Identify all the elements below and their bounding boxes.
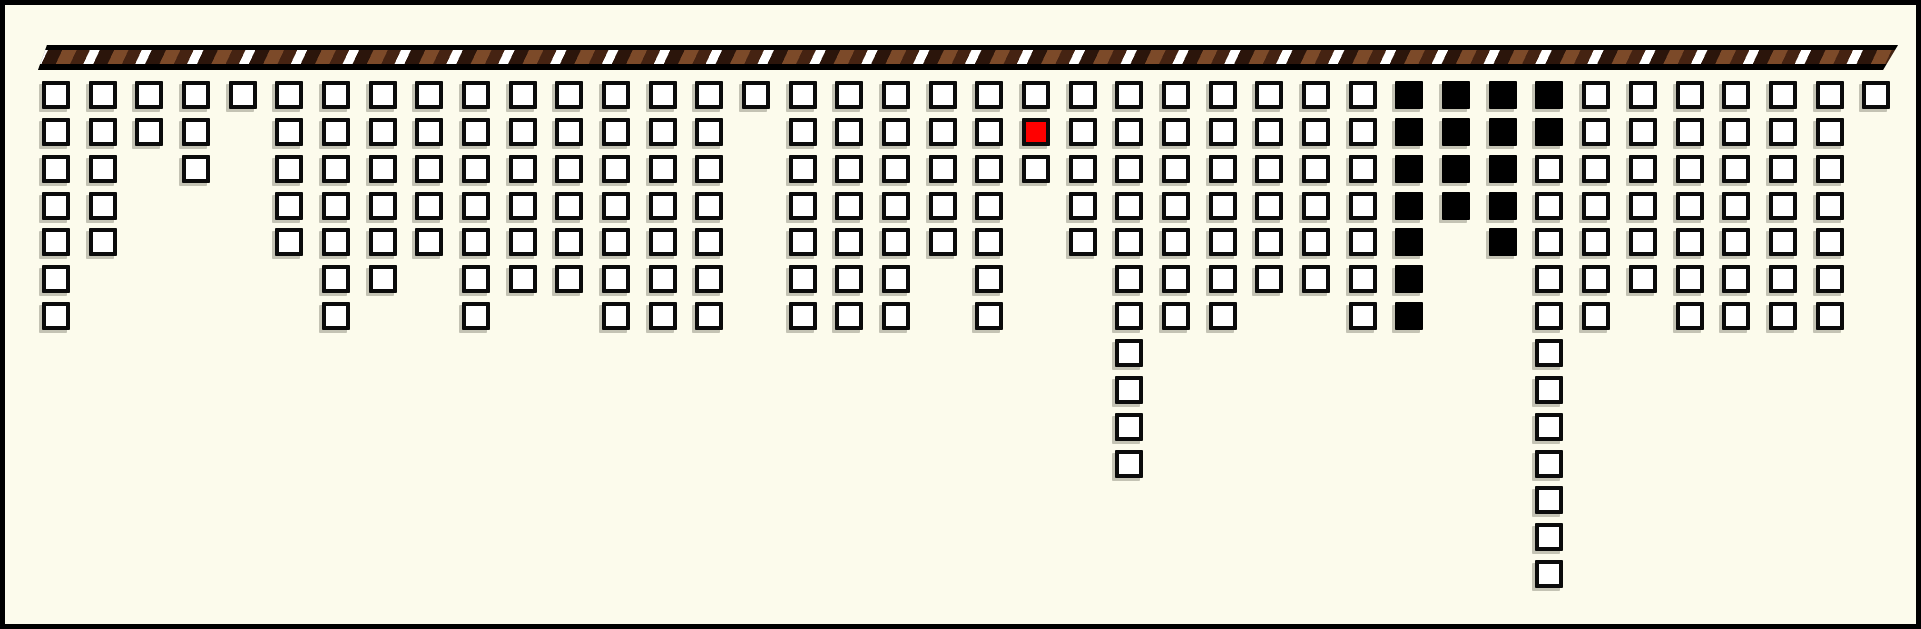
rope-stripes bbox=[38, 50, 1898, 64]
cell-square[interactable] bbox=[695, 302, 723, 330]
cell-square[interactable] bbox=[369, 265, 397, 293]
cell-square[interactable] bbox=[555, 192, 583, 220]
cell-square[interactable] bbox=[275, 228, 303, 256]
cell-square[interactable] bbox=[1535, 450, 1563, 478]
cell-square[interactable] bbox=[42, 81, 70, 109]
cell-square[interactable] bbox=[42, 155, 70, 183]
cell-square[interactable] bbox=[1162, 228, 1190, 256]
cell-square[interactable] bbox=[882, 302, 910, 330]
cell-square[interactable] bbox=[1069, 118, 1097, 146]
cell-square[interactable] bbox=[555, 265, 583, 293]
cell-square[interactable] bbox=[182, 155, 210, 183]
cell-square[interactable] bbox=[1769, 118, 1797, 146]
cell-square[interactable] bbox=[1769, 265, 1797, 293]
cell-square[interactable] bbox=[602, 155, 630, 183]
cell-square[interactable] bbox=[229, 81, 257, 109]
cell-square[interactable] bbox=[835, 118, 863, 146]
cell-square[interactable] bbox=[975, 81, 1003, 109]
cell-square[interactable] bbox=[1629, 192, 1657, 220]
cell-square[interactable] bbox=[1535, 523, 1563, 551]
cell-square[interactable] bbox=[462, 228, 490, 256]
cell-square[interactable] bbox=[882, 192, 910, 220]
cell-square[interactable] bbox=[1209, 228, 1237, 256]
cell-square[interactable] bbox=[1302, 265, 1330, 293]
cell-filled-black[interactable] bbox=[1395, 265, 1423, 293]
cell-square[interactable] bbox=[602, 81, 630, 109]
cell-square[interactable] bbox=[789, 155, 817, 183]
cell-square[interactable] bbox=[1722, 155, 1750, 183]
cell-square[interactable] bbox=[1535, 376, 1563, 404]
cell-square[interactable] bbox=[1629, 155, 1657, 183]
cell-square[interactable] bbox=[135, 81, 163, 109]
cell-square[interactable] bbox=[649, 228, 677, 256]
cell-square[interactable] bbox=[835, 155, 863, 183]
cell-square[interactable] bbox=[1629, 228, 1657, 256]
cell-square[interactable] bbox=[975, 302, 1003, 330]
cell-square[interactable] bbox=[1769, 155, 1797, 183]
cell-square[interactable] bbox=[1255, 118, 1283, 146]
cell-square[interactable] bbox=[1209, 118, 1237, 146]
cell-square[interactable] bbox=[1255, 265, 1283, 293]
cell-square[interactable] bbox=[835, 265, 863, 293]
cell-square[interactable] bbox=[135, 118, 163, 146]
cell-square[interactable] bbox=[602, 192, 630, 220]
cell-square[interactable] bbox=[1816, 228, 1844, 256]
cell-filled-black[interactable] bbox=[1442, 155, 1470, 183]
cell-square[interactable] bbox=[1535, 192, 1563, 220]
cell-square[interactable] bbox=[1676, 118, 1704, 146]
cell-square[interactable] bbox=[1676, 155, 1704, 183]
cell-square[interactable] bbox=[1535, 228, 1563, 256]
cell-square[interactable] bbox=[602, 302, 630, 330]
cell-square[interactable] bbox=[1816, 265, 1844, 293]
cell-square[interactable] bbox=[882, 118, 910, 146]
cell-square[interactable] bbox=[649, 118, 677, 146]
cell-square[interactable] bbox=[1255, 155, 1283, 183]
cell-square[interactable] bbox=[929, 118, 957, 146]
cell-square[interactable] bbox=[1722, 192, 1750, 220]
cell-square[interactable] bbox=[1816, 302, 1844, 330]
cell-square[interactable] bbox=[42, 302, 70, 330]
cell-square[interactable] bbox=[1535, 486, 1563, 514]
cell-square[interactable] bbox=[415, 192, 443, 220]
cell-square[interactable] bbox=[1115, 339, 1143, 367]
cell-square[interactable] bbox=[1769, 228, 1797, 256]
cell-square[interactable] bbox=[509, 81, 537, 109]
cell-square[interactable] bbox=[1582, 302, 1610, 330]
cell-square[interactable] bbox=[1115, 450, 1143, 478]
cell-square[interactable] bbox=[462, 81, 490, 109]
cell-square[interactable] bbox=[555, 155, 583, 183]
cell-square[interactable] bbox=[1162, 118, 1190, 146]
cell-square[interactable] bbox=[42, 192, 70, 220]
cell-square[interactable] bbox=[882, 81, 910, 109]
cell-square[interactable] bbox=[1769, 81, 1797, 109]
cell-square[interactable] bbox=[1535, 265, 1563, 293]
cell-square[interactable] bbox=[1862, 81, 1890, 109]
cell-square[interactable] bbox=[1302, 155, 1330, 183]
cell-square[interactable] bbox=[1629, 118, 1657, 146]
cell-square[interactable] bbox=[1255, 81, 1283, 109]
cell-square[interactable] bbox=[1582, 192, 1610, 220]
cell-square[interactable] bbox=[1349, 228, 1377, 256]
cell-filled-black[interactable] bbox=[1535, 81, 1563, 109]
cell-square[interactable] bbox=[789, 192, 817, 220]
cell-red-highlight[interactable] bbox=[1022, 118, 1050, 146]
cell-square[interactable] bbox=[1769, 302, 1797, 330]
cell-square[interactable] bbox=[695, 228, 723, 256]
cell-square[interactable] bbox=[555, 228, 583, 256]
cell-square[interactable] bbox=[1162, 302, 1190, 330]
cell-square[interactable] bbox=[602, 265, 630, 293]
cell-square[interactable] bbox=[835, 228, 863, 256]
cell-square[interactable] bbox=[1722, 265, 1750, 293]
cell-square[interactable] bbox=[1629, 81, 1657, 109]
cell-square[interactable] bbox=[89, 118, 117, 146]
cell-square[interactable] bbox=[789, 228, 817, 256]
cell-filled-black[interactable] bbox=[1489, 192, 1517, 220]
cell-square[interactable] bbox=[929, 192, 957, 220]
cell-square[interactable] bbox=[322, 265, 350, 293]
cell-square[interactable] bbox=[695, 265, 723, 293]
cell-square[interactable] bbox=[182, 118, 210, 146]
cell-filled-black[interactable] bbox=[1489, 118, 1517, 146]
cell-square[interactable] bbox=[89, 228, 117, 256]
cell-square[interactable] bbox=[462, 265, 490, 293]
cell-square[interactable] bbox=[89, 81, 117, 109]
cell-square[interactable] bbox=[835, 302, 863, 330]
cell-square[interactable] bbox=[789, 81, 817, 109]
cell-filled-black[interactable] bbox=[1489, 155, 1517, 183]
cell-square[interactable] bbox=[462, 155, 490, 183]
cell-square[interactable] bbox=[369, 192, 397, 220]
cell-square[interactable] bbox=[1349, 118, 1377, 146]
cell-square[interactable] bbox=[649, 192, 677, 220]
cell-square[interactable] bbox=[1162, 155, 1190, 183]
cell-square[interactable] bbox=[509, 228, 537, 256]
cell-square[interactable] bbox=[929, 228, 957, 256]
cell-square[interactable] bbox=[1349, 192, 1377, 220]
cell-square[interactable] bbox=[882, 265, 910, 293]
cell-square[interactable] bbox=[322, 118, 350, 146]
cell-square[interactable] bbox=[1676, 228, 1704, 256]
cell-square[interactable] bbox=[1069, 81, 1097, 109]
cell-square[interactable] bbox=[1535, 302, 1563, 330]
cell-square[interactable] bbox=[975, 265, 1003, 293]
cell-filled-black[interactable] bbox=[1489, 81, 1517, 109]
cell-square[interactable] bbox=[89, 192, 117, 220]
cell-square[interactable] bbox=[1349, 265, 1377, 293]
cell-square[interactable] bbox=[369, 118, 397, 146]
cell-square[interactable] bbox=[835, 81, 863, 109]
cell-square[interactable] bbox=[322, 192, 350, 220]
cell-square[interactable] bbox=[415, 118, 443, 146]
cell-square[interactable] bbox=[1582, 155, 1610, 183]
cell-square[interactable] bbox=[602, 118, 630, 146]
cell-square[interactable] bbox=[1302, 192, 1330, 220]
cell-square[interactable] bbox=[789, 118, 817, 146]
cell-square[interactable] bbox=[1582, 118, 1610, 146]
cell-square[interactable] bbox=[322, 228, 350, 256]
cell-square[interactable] bbox=[1676, 302, 1704, 330]
cell-square[interactable] bbox=[789, 302, 817, 330]
cell-square[interactable] bbox=[462, 118, 490, 146]
cell-square[interactable] bbox=[1349, 302, 1377, 330]
cell-square[interactable] bbox=[1069, 228, 1097, 256]
cell-square[interactable] bbox=[1722, 81, 1750, 109]
cell-square[interactable] bbox=[322, 81, 350, 109]
cell-square[interactable] bbox=[1069, 155, 1097, 183]
cell-square[interactable] bbox=[182, 81, 210, 109]
cell-square[interactable] bbox=[1302, 81, 1330, 109]
cell-square[interactable] bbox=[1582, 81, 1610, 109]
cell-square[interactable] bbox=[1255, 228, 1283, 256]
cell-square[interactable] bbox=[1022, 81, 1050, 109]
cell-square[interactable] bbox=[1162, 81, 1190, 109]
cell-square[interactable] bbox=[1115, 302, 1143, 330]
cell-square[interactable] bbox=[1115, 192, 1143, 220]
cell-square[interactable] bbox=[649, 302, 677, 330]
cell-square[interactable] bbox=[1676, 265, 1704, 293]
cell-square[interactable] bbox=[1115, 413, 1143, 441]
cell-square[interactable] bbox=[602, 228, 630, 256]
cell-filled-black[interactable] bbox=[1395, 155, 1423, 183]
cell-square[interactable] bbox=[649, 155, 677, 183]
cell-square[interactable] bbox=[509, 155, 537, 183]
cell-square[interactable] bbox=[1115, 118, 1143, 146]
cell-square[interactable] bbox=[1209, 81, 1237, 109]
cell-square[interactable] bbox=[695, 155, 723, 183]
cell-square[interactable] bbox=[929, 81, 957, 109]
cell-square[interactable] bbox=[649, 265, 677, 293]
cell-square[interactable] bbox=[462, 302, 490, 330]
cell-square[interactable] bbox=[509, 265, 537, 293]
cell-square[interactable] bbox=[695, 192, 723, 220]
cell-square[interactable] bbox=[415, 228, 443, 256]
cell-square[interactable] bbox=[1722, 302, 1750, 330]
cell-square[interactable] bbox=[275, 118, 303, 146]
cell-square[interactable] bbox=[555, 118, 583, 146]
cell-square[interactable] bbox=[1722, 118, 1750, 146]
cell-square[interactable] bbox=[1209, 192, 1237, 220]
cell-square[interactable] bbox=[789, 265, 817, 293]
cell-square[interactable] bbox=[1255, 192, 1283, 220]
cell-square[interactable] bbox=[1115, 228, 1143, 256]
cell-square[interactable] bbox=[975, 155, 1003, 183]
cell-filled-black[interactable] bbox=[1395, 192, 1423, 220]
cell-square[interactable] bbox=[1769, 192, 1797, 220]
striped-rope-bar bbox=[38, 45, 1898, 70]
cell-square[interactable] bbox=[322, 155, 350, 183]
cell-square[interactable] bbox=[1115, 155, 1143, 183]
cell-filled-black[interactable] bbox=[1395, 118, 1423, 146]
cell-filled-black[interactable] bbox=[1442, 192, 1470, 220]
cell-square[interactable] bbox=[509, 192, 537, 220]
cell-square[interactable] bbox=[1302, 228, 1330, 256]
cell-filled-black[interactable] bbox=[1442, 81, 1470, 109]
cell-square[interactable] bbox=[275, 81, 303, 109]
cell-square[interactable] bbox=[835, 192, 863, 220]
cell-square[interactable] bbox=[42, 265, 70, 293]
cell-square[interactable] bbox=[415, 155, 443, 183]
cell-square[interactable] bbox=[1816, 118, 1844, 146]
cell-square[interactable] bbox=[322, 302, 350, 330]
cell-square[interactable] bbox=[275, 155, 303, 183]
cell-square[interactable] bbox=[415, 81, 443, 109]
cell-square[interactable] bbox=[1209, 155, 1237, 183]
cell-square[interactable] bbox=[1535, 339, 1563, 367]
cell-square[interactable] bbox=[1676, 192, 1704, 220]
cell-square[interactable] bbox=[1162, 265, 1190, 293]
cell-filled-black[interactable] bbox=[1442, 118, 1470, 146]
cell-filled-black[interactable] bbox=[1489, 228, 1517, 256]
cell-square[interactable] bbox=[462, 192, 490, 220]
cell-square[interactable] bbox=[1302, 118, 1330, 146]
cell-square[interactable] bbox=[975, 228, 1003, 256]
hanging-squares-board bbox=[0, 0, 1921, 629]
cell-square[interactable] bbox=[1676, 81, 1704, 109]
cell-square[interactable] bbox=[1022, 155, 1050, 183]
cell-filled-black[interactable] bbox=[1395, 81, 1423, 109]
cell-square[interactable] bbox=[555, 81, 583, 109]
cell-square[interactable] bbox=[1209, 302, 1237, 330]
cell-square[interactable] bbox=[695, 118, 723, 146]
cell-square[interactable] bbox=[742, 81, 770, 109]
cell-square[interactable] bbox=[275, 192, 303, 220]
cell-square[interactable] bbox=[369, 81, 397, 109]
cell-square[interactable] bbox=[1582, 228, 1610, 256]
cell-square[interactable] bbox=[1582, 265, 1610, 293]
cell-square[interactable] bbox=[882, 155, 910, 183]
cell-square[interactable] bbox=[1115, 376, 1143, 404]
cell-square[interactable] bbox=[42, 118, 70, 146]
cell-square[interactable] bbox=[1722, 228, 1750, 256]
cell-square[interactable] bbox=[1535, 155, 1563, 183]
cell-square[interactable] bbox=[975, 192, 1003, 220]
cell-square[interactable] bbox=[695, 81, 723, 109]
cell-square[interactable] bbox=[1535, 560, 1563, 588]
cell-square[interactable] bbox=[975, 118, 1003, 146]
cell-square[interactable] bbox=[929, 155, 957, 183]
cell-square[interactable] bbox=[1816, 192, 1844, 220]
cell-square[interactable] bbox=[649, 81, 677, 109]
cell-square[interactable] bbox=[369, 155, 397, 183]
cell-square[interactable] bbox=[1115, 265, 1143, 293]
cell-square[interactable] bbox=[1162, 192, 1190, 220]
cell-square[interactable] bbox=[1816, 81, 1844, 109]
cell-square[interactable] bbox=[1349, 81, 1377, 109]
cell-square[interactable] bbox=[1535, 413, 1563, 441]
cell-filled-black[interactable] bbox=[1395, 302, 1423, 330]
cell-square[interactable] bbox=[1209, 265, 1237, 293]
cell-square[interactable] bbox=[369, 228, 397, 256]
cell-square[interactable] bbox=[882, 228, 910, 256]
cell-square[interactable] bbox=[1349, 155, 1377, 183]
cell-square[interactable] bbox=[1816, 155, 1844, 183]
cell-square[interactable] bbox=[89, 155, 117, 183]
cell-square[interactable] bbox=[509, 118, 537, 146]
cell-filled-black[interactable] bbox=[1395, 228, 1423, 256]
cell-square[interactable] bbox=[1115, 81, 1143, 109]
cell-square[interactable] bbox=[1629, 265, 1657, 293]
cell-filled-black[interactable] bbox=[1535, 118, 1563, 146]
cell-square[interactable] bbox=[42, 228, 70, 256]
cell-square[interactable] bbox=[1069, 192, 1097, 220]
